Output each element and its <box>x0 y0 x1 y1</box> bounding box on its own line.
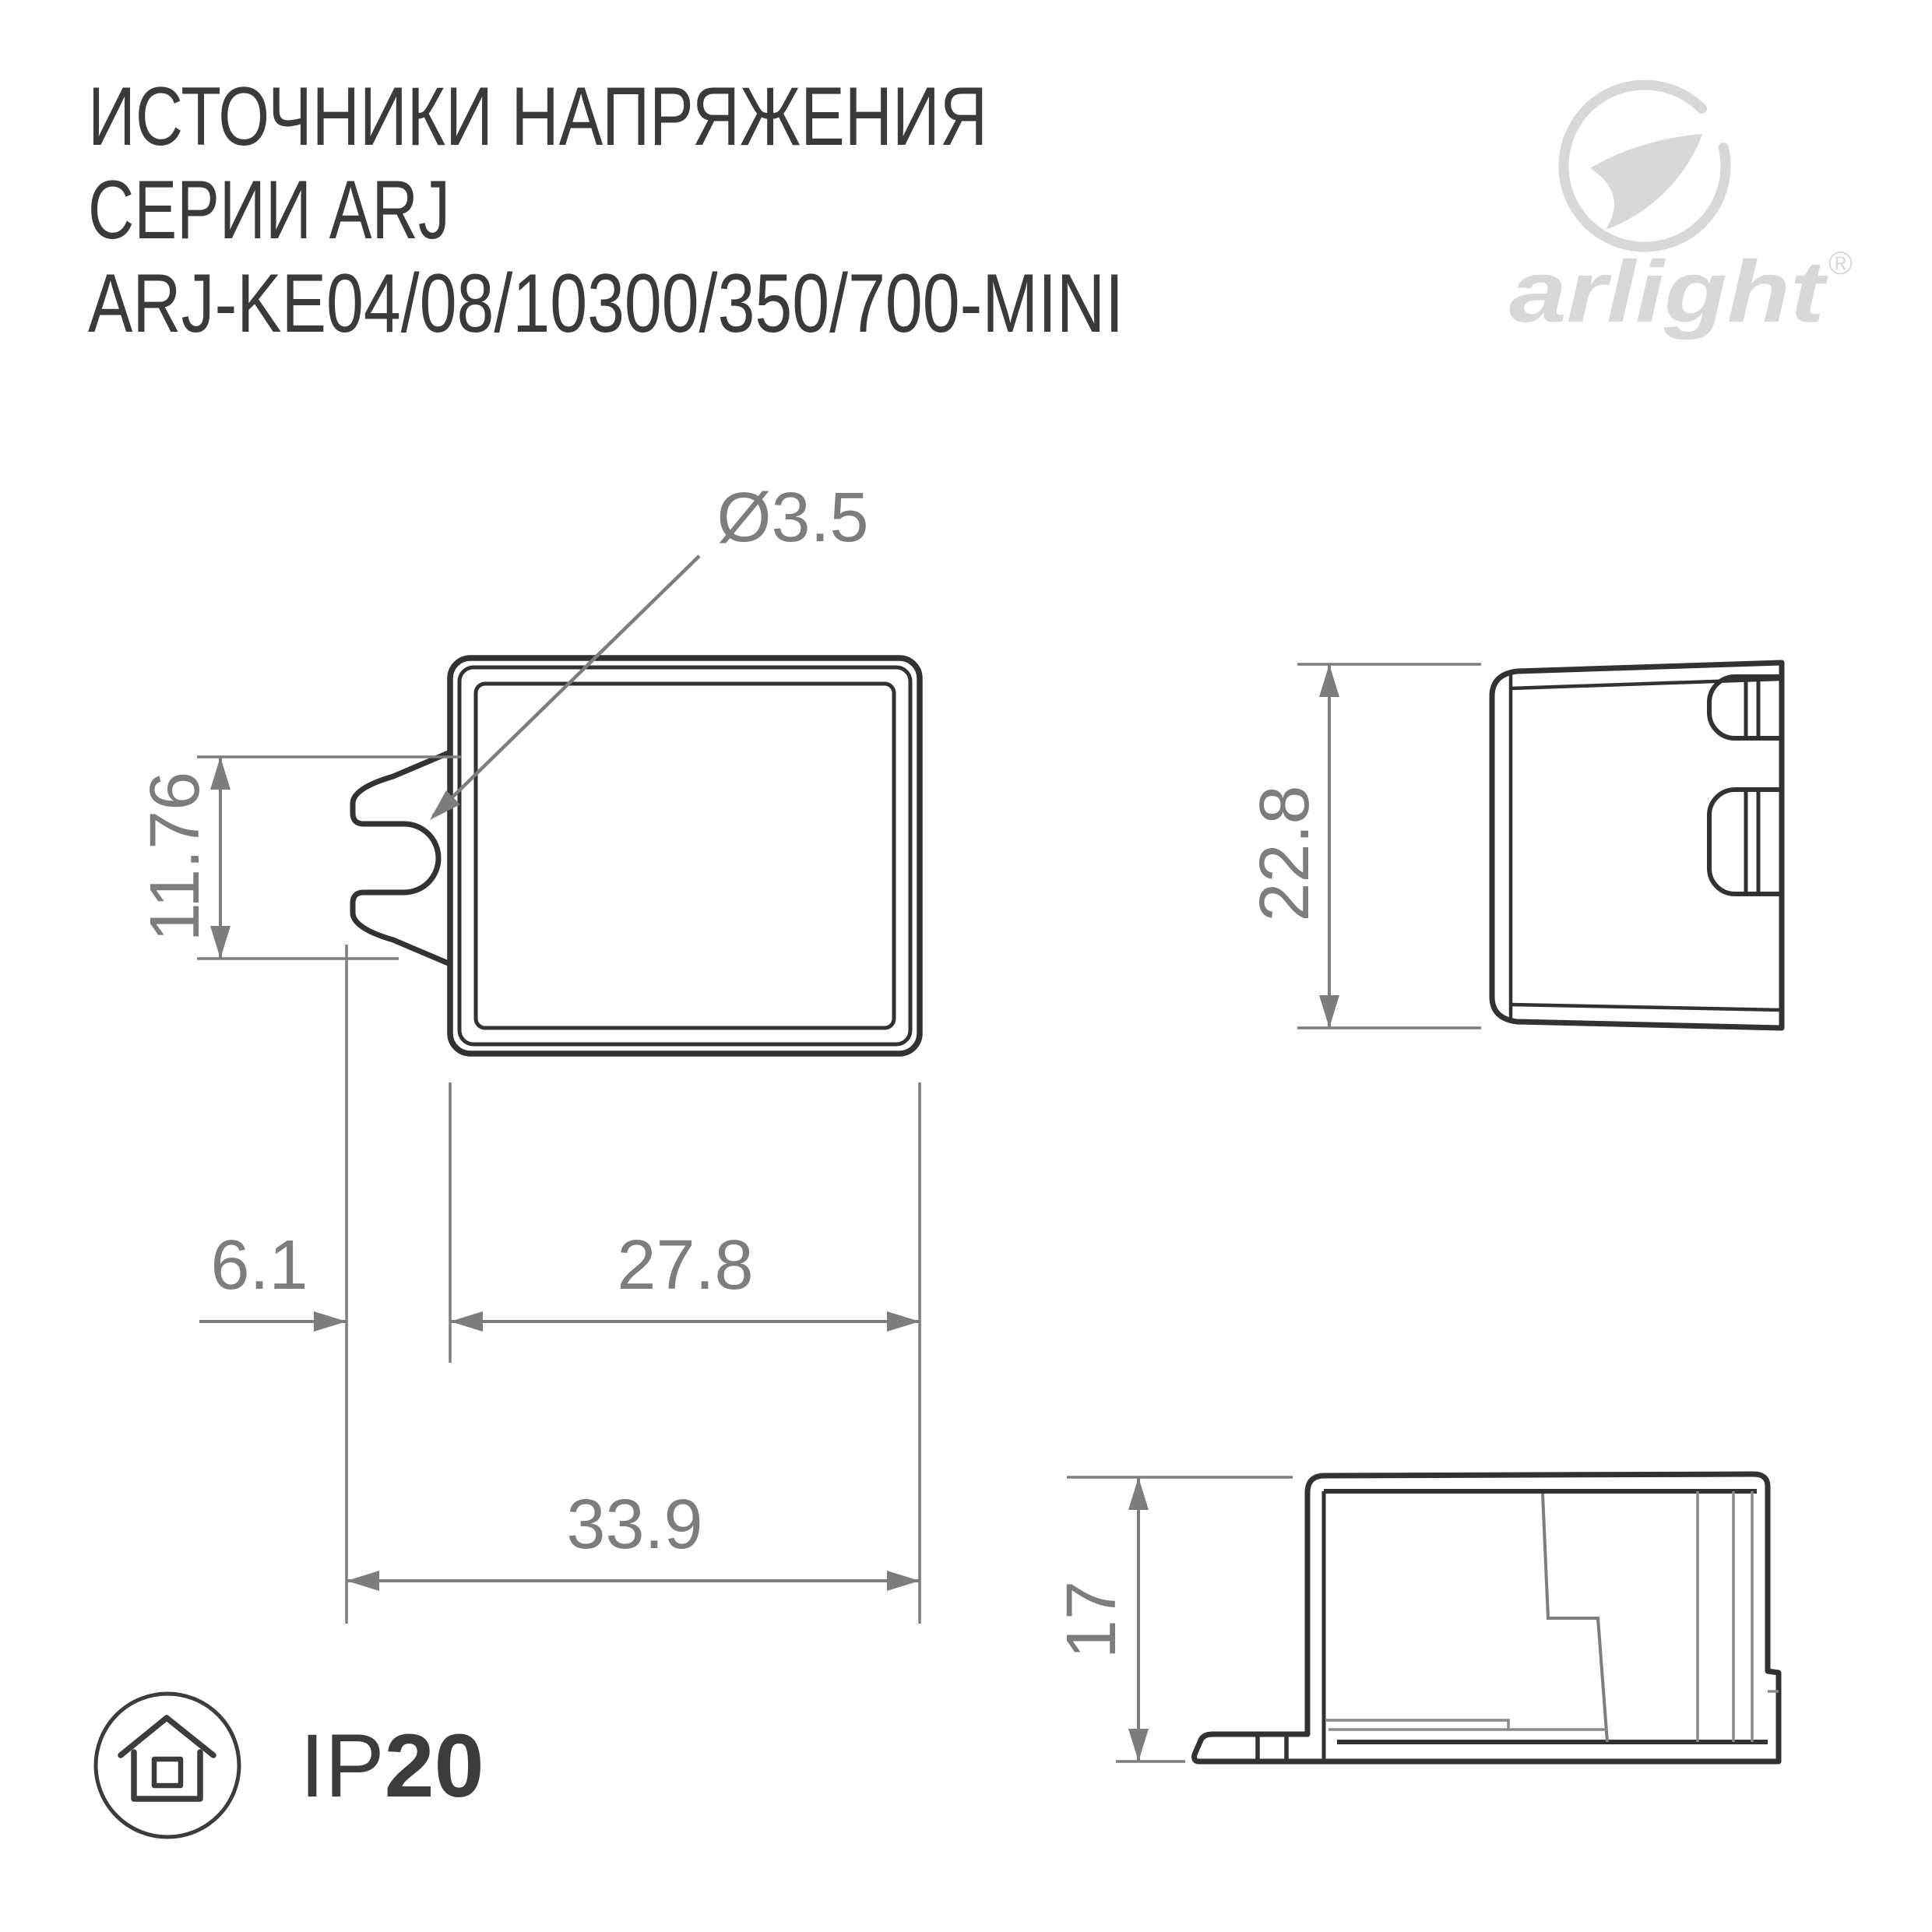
side-view <box>1492 663 1782 1028</box>
brand-registered-mark: ® <box>1828 245 1853 281</box>
profile-view <box>1195 1474 1779 1761</box>
arrow-down-icon <box>1319 995 1339 1028</box>
ip-rating-prefix: IP <box>300 1716 385 1816</box>
title-block: ИСТОЧНИКИ НАПРЯЖЕНИЯ СЕРИИ ARJ ARJ-KE04/… <box>88 69 1124 350</box>
dim-profile-depth: 17 <box>1053 1581 1131 1659</box>
title-line-2: СЕРИИ ARJ <box>88 163 450 256</box>
house-icon <box>121 1718 213 1799</box>
title-line-1: ИСТОЧНИКИ НАПРЯЖЕНИЯ <box>88 69 987 163</box>
profile-internal-step-line <box>1543 1494 1607 1742</box>
arrow-right-icon <box>887 1571 920 1591</box>
ip-rating-value: 20 <box>385 1716 484 1816</box>
front-view-inner-panel <box>476 684 894 1028</box>
side-view-inner-top-edge <box>1511 679 1782 688</box>
dim-body-width: 27.8 <box>617 1226 753 1304</box>
dim-hole-diameter: Ø3.5 <box>716 479 868 557</box>
arrow-left-icon <box>347 1571 379 1591</box>
arrow-down-icon <box>1128 1729 1149 1761</box>
arrow-right-icon <box>887 1311 920 1332</box>
brand-logo: arlight ® <box>1509 85 1853 340</box>
side-view-outer-case <box>1492 663 1782 1028</box>
profile-view-dimensions: 17 <box>1053 1477 1293 1761</box>
arrow-up-icon <box>1319 664 1339 697</box>
side-view-dimensions: 22.8 <box>1246 664 1481 1028</box>
dim-side-height: 22.8 <box>1246 785 1324 921</box>
ip-rating-text: IP20 <box>300 1716 484 1816</box>
dim-tab-offset: 6.1 <box>210 1226 308 1304</box>
front-view-mounting-tab <box>353 752 450 964</box>
arrow-up-icon <box>1128 1477 1149 1510</box>
datasheet-page: ИСТОЧНИКИ НАПРЯЖЕНИЯ СЕРИИ ARJ ARJ-KE04/… <box>0 0 1932 1932</box>
title-line-3: ARJ-KE04/08/10300/350/700-MINI <box>88 256 1124 350</box>
arrow-right-icon <box>314 1311 347 1332</box>
arrow-left-icon <box>450 1311 483 1332</box>
ip-badge: IP20 <box>96 1694 484 1837</box>
technical-drawing: ИСТОЧНИКИ НАПРЯЖЕНИЯ СЕРИИ ARJ ARJ-KE04/… <box>0 0 1932 1932</box>
profile-internal-shelf-line <box>1326 1720 1607 1730</box>
front-view-outer-case <box>450 658 920 1054</box>
logo-arrow-icon <box>1590 134 1702 230</box>
side-view-inner-bottom-edge <box>1511 1005 1782 1010</box>
brand-name: arlight <box>1509 243 1829 340</box>
dim-overall-width: 33.9 <box>566 1486 702 1564</box>
hole-leader-line <box>433 556 699 816</box>
house-window <box>154 1759 181 1786</box>
front-view <box>353 658 920 1054</box>
dim-slot-height: 11.76 <box>136 772 214 942</box>
profile-view-outer-case <box>1195 1474 1779 1761</box>
